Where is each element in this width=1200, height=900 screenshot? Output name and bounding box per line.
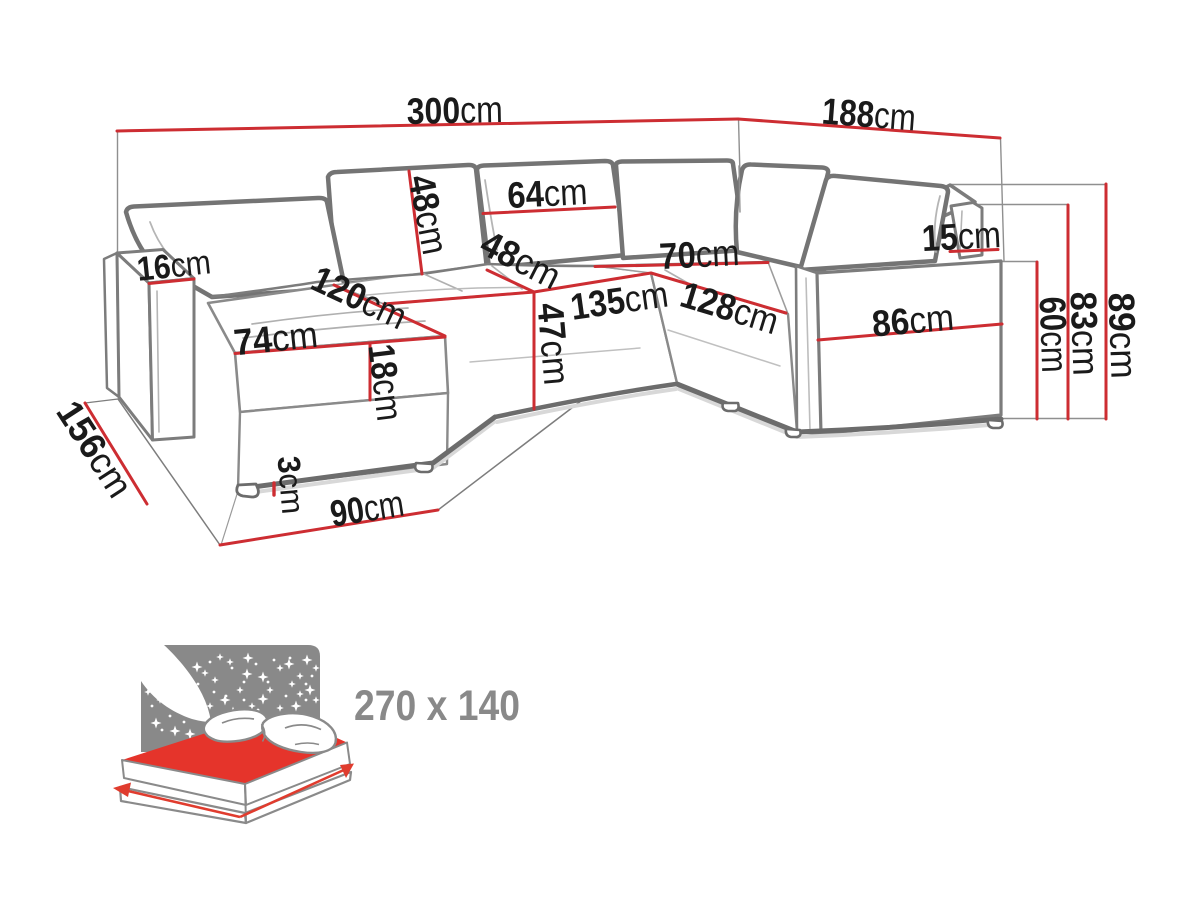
svg-text:64cm: 64cm [506, 171, 588, 216]
svg-text:188cm: 188cm [821, 91, 918, 139]
svg-text:86cm: 86cm [870, 297, 955, 345]
svg-text:270 x 140: 270 x 140 [354, 682, 520, 730]
svg-text:83cm: 83cm [1063, 291, 1107, 376]
svg-text:70cm: 70cm [658, 232, 740, 277]
svg-text:16cm: 16cm [135, 243, 213, 289]
svg-text:300cm: 300cm [406, 89, 503, 132]
svg-text:74cm: 74cm [232, 314, 320, 364]
svg-text:47cm: 47cm [529, 301, 577, 386]
svg-text:3cm: 3cm [270, 455, 311, 516]
svg-text:15cm: 15cm [921, 214, 1002, 259]
svg-text:89cm: 89cm [1101, 292, 1145, 379]
